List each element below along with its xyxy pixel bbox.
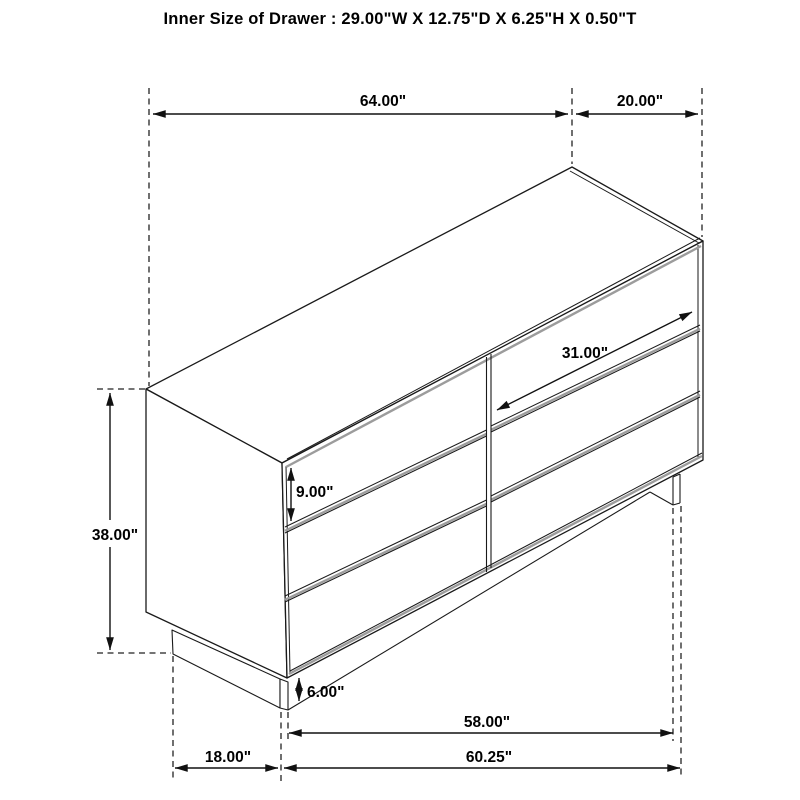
right-leg bbox=[673, 474, 680, 505]
dim-overall-height-label: 38.00" bbox=[92, 527, 138, 544]
dim-top-width-label: 64.00" bbox=[360, 93, 406, 110]
dimension-diagram-page: Inner Size of Drawer : 29.00"W X 12.75"D… bbox=[0, 0, 800, 800]
dresser-isometric-diagram: 64.00" 20.00" 38.00" 9.00" 31.00" bbox=[0, 0, 800, 800]
dim-base-height-label: 6.00" bbox=[307, 684, 345, 701]
dim-drawer-height-label: 9.00" bbox=[296, 484, 334, 501]
plinth-right-depth-edge bbox=[650, 492, 673, 505]
dim-drawer-width-label: 31.00" bbox=[562, 345, 608, 362]
dim-top-depth-label: 20.00" bbox=[617, 93, 663, 110]
dim-base-height: 6.00" bbox=[299, 678, 345, 701]
dim-base-front-width-label: 58.00" bbox=[464, 714, 510, 731]
dim-base-depth-label: 18.00" bbox=[205, 749, 251, 766]
dim-bottom-width-label: 60.25" bbox=[466, 749, 512, 766]
